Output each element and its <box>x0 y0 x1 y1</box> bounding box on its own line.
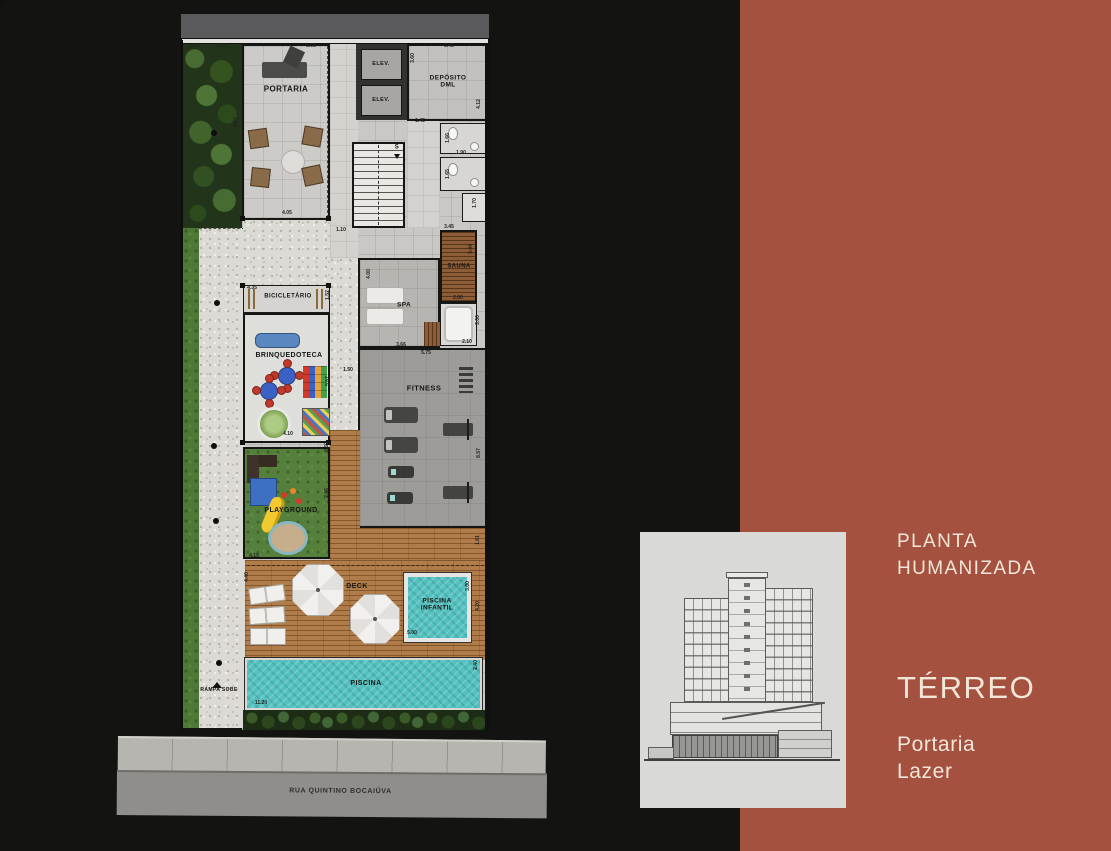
sink-icon <box>470 178 479 187</box>
bike-rack-icon <box>316 289 326 309</box>
mid-corridor <box>330 258 358 430</box>
elevator-icon <box>361 49 402 80</box>
exercise-bike-icon <box>387 492 413 504</box>
hedge-strip <box>243 710 488 730</box>
elevator-icon <box>361 85 402 116</box>
section-steps <box>648 747 674 759</box>
post-dot <box>211 130 217 136</box>
sofa-icon <box>255 333 300 348</box>
plan-right-wall <box>485 44 489 730</box>
toy-blocks-icon <box>303 366 327 398</box>
section-base-right <box>778 730 832 758</box>
deck-upper <box>330 528 486 562</box>
ramp-arrow-icon <box>212 682 222 688</box>
page: RUA QUINTINO BOCAIÚVA PLANTA HUMANIZADA … <box>0 0 1111 851</box>
play-chair-icon <box>277 386 286 395</box>
legend-item-portaria: Portaria <box>897 731 975 758</box>
legend-items: Portaria Lazer <box>897 731 975 785</box>
top-neighbor-band <box>181 14 489 41</box>
bike-rack-icon <box>248 289 258 309</box>
lounge-chair-icon <box>301 164 324 187</box>
play-chair-icon <box>252 386 261 395</box>
page-title: PLANTA HUMANIZADA <box>897 528 1037 582</box>
column <box>240 283 245 288</box>
column <box>326 216 331 221</box>
page-title-line2: HUMANIZADA <box>897 555 1037 582</box>
rug-icon <box>257 407 291 441</box>
spa-bed-icon <box>366 308 404 325</box>
jacuzzi-tub-icon <box>444 306 473 342</box>
umbrella-icon <box>350 594 400 644</box>
room-wc-2 <box>440 157 487 191</box>
ball-icon <box>281 492 287 498</box>
reception-desk-icon <box>262 62 307 78</box>
sun-lounger-icon <box>248 606 285 625</box>
sun-lounger-icon <box>250 628 286 645</box>
room-sauna <box>440 230 477 303</box>
stairs-arrow-icon <box>394 154 400 159</box>
lounge-chair-icon <box>250 167 271 188</box>
page-title-line1: PLANTA <box>897 528 1037 555</box>
deck-dash <box>247 565 484 566</box>
side-walkway <box>199 228 245 728</box>
treadmill-icon <box>384 407 418 423</box>
street-road: RUA QUINTINO BOCAIÚVA <box>117 770 547 818</box>
lounge-chair-icon <box>301 125 323 147</box>
toilet-icon <box>448 127 458 140</box>
closet <box>462 193 487 222</box>
section-tower-left <box>684 598 729 702</box>
ball-icon <box>296 498 302 504</box>
spa-bed-icon <box>366 287 404 304</box>
section-shaft-windows <box>744 583 750 697</box>
section-ground-line <box>644 759 840 761</box>
stairs-dash <box>378 145 379 225</box>
section-shaft <box>728 578 766 702</box>
play-table-icon <box>260 382 278 400</box>
post-dot <box>214 300 220 306</box>
exercise-bike-icon <box>388 466 414 478</box>
play-chair-icon <box>265 374 274 383</box>
street-name: RUA QUINTINO BOCAIÚVA <box>289 787 391 795</box>
column <box>326 440 331 445</box>
portaria-dashed-divider <box>327 46 328 218</box>
post-dot <box>211 443 217 449</box>
column <box>240 440 245 445</box>
garden-trees <box>183 44 242 228</box>
toilet-icon <box>448 163 458 176</box>
post-dot <box>216 660 222 666</box>
plan-left-wall <box>181 40 183 730</box>
dumbbell-rack-icon <box>459 367 473 393</box>
section-tower-right <box>765 588 813 702</box>
play-table-icon <box>278 367 296 385</box>
column <box>240 216 245 221</box>
play-chair-icon <box>283 359 292 368</box>
lounge-chair-icon <box>248 128 269 149</box>
sauna-steps-icon <box>424 322 440 346</box>
section-parapet <box>726 572 768 578</box>
grass-strip <box>183 228 199 728</box>
kids-pool-water <box>408 577 467 638</box>
column <box>0 0 5 5</box>
main-pool <box>245 658 482 710</box>
post-dot <box>213 518 219 524</box>
building-section-icon <box>640 532 846 808</box>
weight-bench-icon <box>443 486 473 499</box>
play-mat-icon <box>302 408 330 436</box>
room-wc-1 <box>440 123 487 154</box>
treadmill-icon <box>384 437 418 453</box>
deck-corridor <box>330 430 360 530</box>
sandbox-icon <box>268 521 308 555</box>
sink-icon <box>470 142 479 151</box>
legend-item-lazer: Lazer <box>897 758 975 785</box>
section-base-dark <box>672 735 778 758</box>
weight-bench-icon <box>443 423 473 436</box>
walkway-dash <box>199 228 245 229</box>
column <box>326 283 331 288</box>
room-deposito-dml <box>407 44 487 121</box>
ball-icon <box>290 488 296 494</box>
terrace-path <box>243 220 330 285</box>
floor-title: TÉRREO <box>897 670 1035 706</box>
bath-hall-floor <box>407 121 440 228</box>
